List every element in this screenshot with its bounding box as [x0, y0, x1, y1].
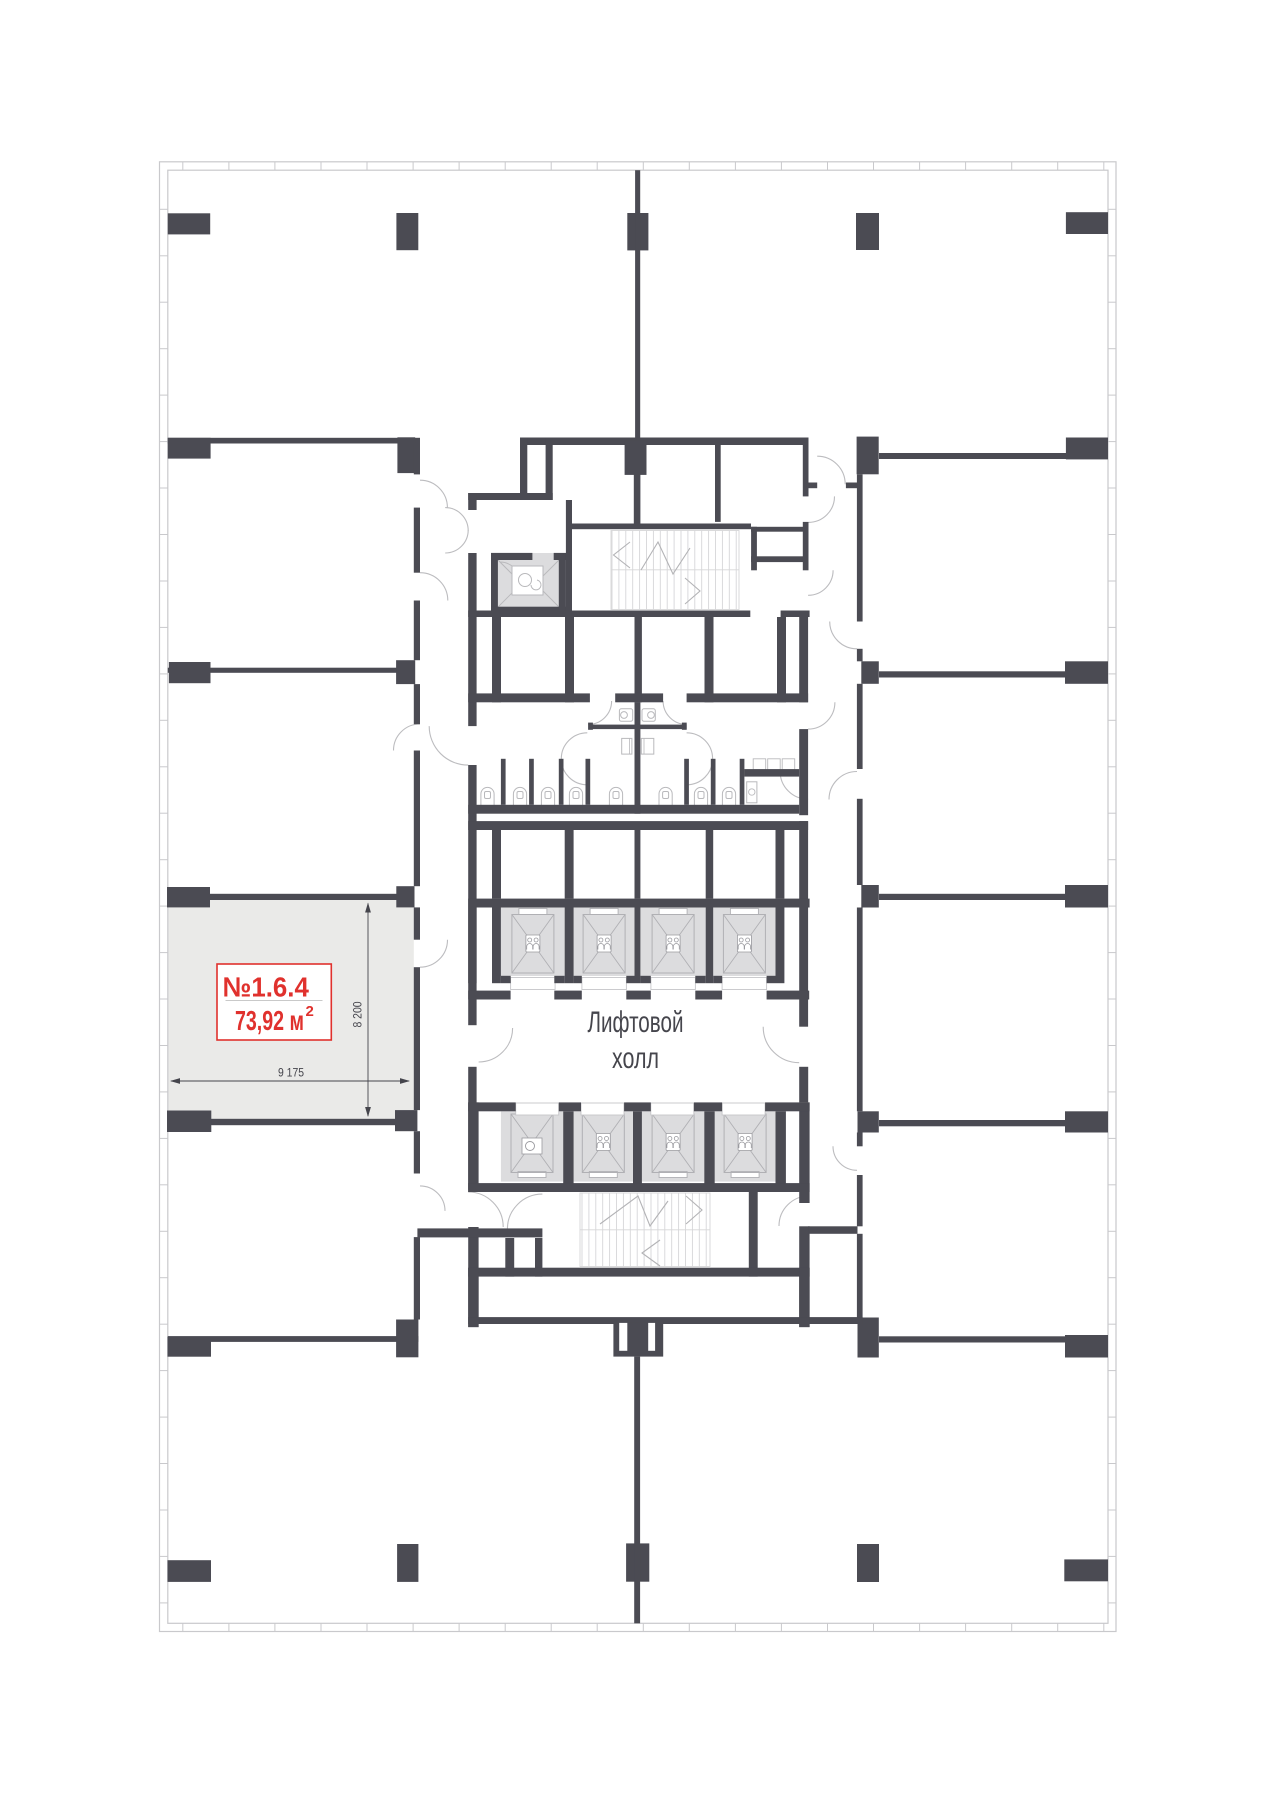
svg-text:8 200: 8 200: [353, 1002, 365, 1028]
svg-text:2: 2: [306, 1003, 314, 1020]
svg-text:73,92 м: 73,92 м: [235, 1005, 304, 1036]
svg-text:№1.6.4: №1.6.4: [223, 971, 310, 1002]
svg-text:Лифтовой: Лифтовой: [588, 1006, 684, 1039]
svg-text:9 175: 9 175: [278, 1067, 304, 1079]
svg-text:холл: холл: [612, 1042, 659, 1075]
